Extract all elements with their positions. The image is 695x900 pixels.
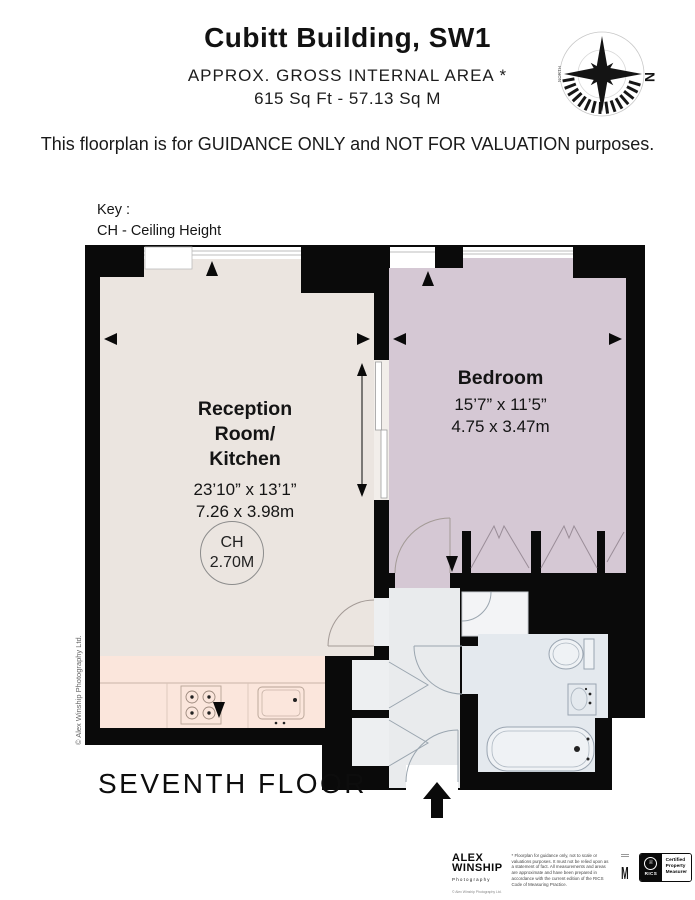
rics-logo: ♕ RICS [640, 854, 662, 881]
ceiling-height-badge: CH 2.70M [200, 521, 264, 585]
toilet [549, 639, 583, 669]
ceiling-height-value: 2.70M [201, 553, 263, 573]
measurer-mark-logo: M [619, 853, 631, 877]
certified-property-measurer-label: Certified Property Measurer [662, 854, 691, 881]
measurer-mark-text [619, 854, 631, 859]
photographer-logo-credit: © Alex Winship Photography Ltd. [452, 887, 504, 897]
hall-cupboard-floor [462, 592, 528, 636]
reception-name-1: Reception [150, 397, 340, 422]
reception-name-2: Room/ [150, 422, 340, 447]
photographer-logo-sub: Photography [452, 875, 504, 885]
footer-fine-print: * Floorplan for guidance only, not to sc… [512, 853, 611, 887]
photographer-logo: ALEX WINSHIP Photography © Alex Winship … [452, 853, 504, 897]
closet-1-floor [352, 660, 389, 710]
rics-label: RICS [640, 871, 662, 876]
ceiling-height-abbr: CH [201, 533, 263, 553]
rics-lion-icon: ♕ [644, 857, 657, 870]
side-copyright: © Alex Winship Photography Ltd. [74, 635, 83, 745]
reception-room-label: Reception Room/ Kitchen 23’10” x 13’1” 7… [150, 397, 340, 523]
reception-door-opening [374, 598, 389, 646]
reception-dims-imperial: 23’10” x 13’1” [150, 479, 340, 501]
closet-2-floor [352, 718, 389, 766]
floorplan-page: Cubitt Building, SW1 APPROX. GROSS INTER… [0, 0, 695, 900]
bedroom-door-opening [395, 573, 450, 588]
rics-certified-badge: ♕ RICS Certified Property Measurer [639, 853, 692, 882]
bedroom-name: Bedroom [408, 366, 593, 391]
sliding-door [374, 360, 389, 500]
bedroom-dims-imperial: 15’7” x 11’5” [408, 394, 593, 416]
reception-dims-metric: 7.26 x 3.98m [150, 501, 340, 523]
footer: ALEX WINSHIP Photography © Alex Winship … [452, 853, 692, 897]
bathroom-door-opening [462, 646, 478, 694]
reception-name-3: Kitchen [150, 447, 340, 472]
bedroom-label: Bedroom 15’7” x 11’5” 4.75 x 3.47m [408, 366, 593, 438]
hallway-floor [389, 588, 460, 788]
photographer-logo-line2: WINSHIP [452, 863, 504, 873]
bedroom-dims-metric: 4.75 x 3.47m [408, 416, 593, 438]
measurer-mark-letter: M [621, 864, 629, 883]
floor-level-label: SEVENTH FLOOR [98, 768, 367, 800]
floorplan-drawing [0, 0, 695, 900]
